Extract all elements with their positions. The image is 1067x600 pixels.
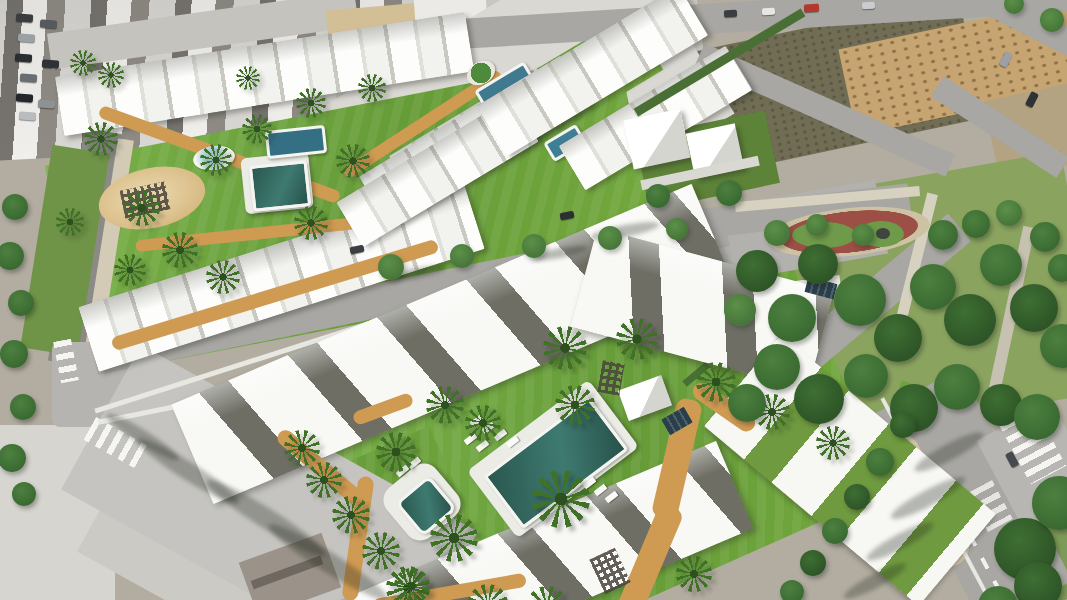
park-tree	[944, 294, 996, 346]
roadside-tree	[844, 484, 870, 510]
park-tree	[768, 294, 816, 342]
palm	[358, 74, 386, 102]
park-tree	[934, 364, 980, 410]
palm	[543, 326, 587, 370]
palm	[284, 430, 320, 466]
parked-car	[16, 93, 34, 102]
street-tree	[666, 218, 688, 240]
park-tree	[996, 200, 1022, 226]
park-tree	[1030, 222, 1060, 252]
roadside-tree	[890, 412, 916, 438]
palm	[206, 260, 240, 294]
park-tree	[834, 274, 886, 326]
park-tree	[1014, 394, 1060, 440]
palm	[114, 254, 146, 286]
playground-equipment	[876, 228, 890, 239]
park-tree	[736, 250, 778, 292]
park-tree	[724, 294, 756, 326]
roadside-tree	[800, 550, 826, 576]
parked-car	[38, 99, 56, 108]
palm	[426, 386, 464, 424]
aerial-render-image: Aerial 3D architectural render of a new-…	[0, 0, 1067, 600]
verge-tree	[2, 194, 28, 220]
parked-car	[19, 111, 37, 120]
palm	[84, 122, 118, 156]
palm	[362, 532, 400, 570]
park-tree	[794, 374, 844, 424]
villa-tree	[716, 180, 742, 206]
park-tree	[980, 244, 1022, 286]
street-tree	[378, 254, 404, 280]
palm	[336, 144, 370, 178]
palm	[532, 470, 590, 528]
palm	[465, 405, 501, 441]
palm	[555, 385, 595, 425]
parked-car	[42, 59, 60, 68]
car	[762, 8, 775, 16]
palm	[816, 426, 850, 460]
corner-tree-tr	[1040, 8, 1064, 32]
palm	[236, 66, 260, 90]
parked-car	[40, 19, 58, 28]
park-tree	[844, 354, 888, 398]
park-tree	[764, 220, 790, 246]
pool-a	[249, 160, 311, 212]
parked-car	[16, 13, 34, 22]
car	[862, 2, 875, 10]
parked-car	[18, 33, 36, 42]
scene	[0, 0, 1067, 600]
street-tree	[450, 244, 474, 268]
verge-tree	[12, 482, 36, 506]
park-tree	[798, 244, 838, 284]
park-tree	[806, 214, 828, 236]
palm	[394, 568, 430, 600]
park-tree	[852, 224, 874, 246]
palm	[296, 88, 326, 118]
verge-tree	[8, 290, 34, 316]
palm	[124, 190, 160, 226]
park-tree	[928, 220, 958, 250]
roadside-tree	[866, 448, 894, 476]
roadside-tree	[780, 580, 804, 600]
park-tree	[962, 210, 990, 238]
palm	[306, 462, 342, 498]
palm	[376, 432, 416, 472]
palm	[242, 114, 272, 144]
palm	[70, 50, 96, 76]
park-tree	[728, 384, 766, 422]
street-tree	[598, 226, 622, 250]
parked-car	[15, 53, 33, 62]
car-red-top-road	[804, 3, 820, 12]
palm	[676, 556, 712, 592]
park-tree	[1010, 284, 1058, 332]
verge-tree	[10, 394, 36, 420]
roadside-tree	[822, 518, 848, 544]
villa-tree	[646, 184, 670, 208]
palm	[332, 496, 370, 534]
palm	[294, 206, 328, 240]
verge-tree	[0, 340, 28, 368]
palm	[98, 62, 124, 88]
car	[724, 10, 737, 18]
park-tree	[754, 344, 800, 390]
palm	[430, 514, 478, 562]
palm	[56, 208, 84, 236]
palm	[616, 318, 658, 360]
palm	[162, 232, 198, 268]
street-tree	[522, 234, 546, 258]
parked-car	[20, 73, 38, 82]
palm	[200, 144, 232, 176]
park-tree	[874, 314, 922, 362]
